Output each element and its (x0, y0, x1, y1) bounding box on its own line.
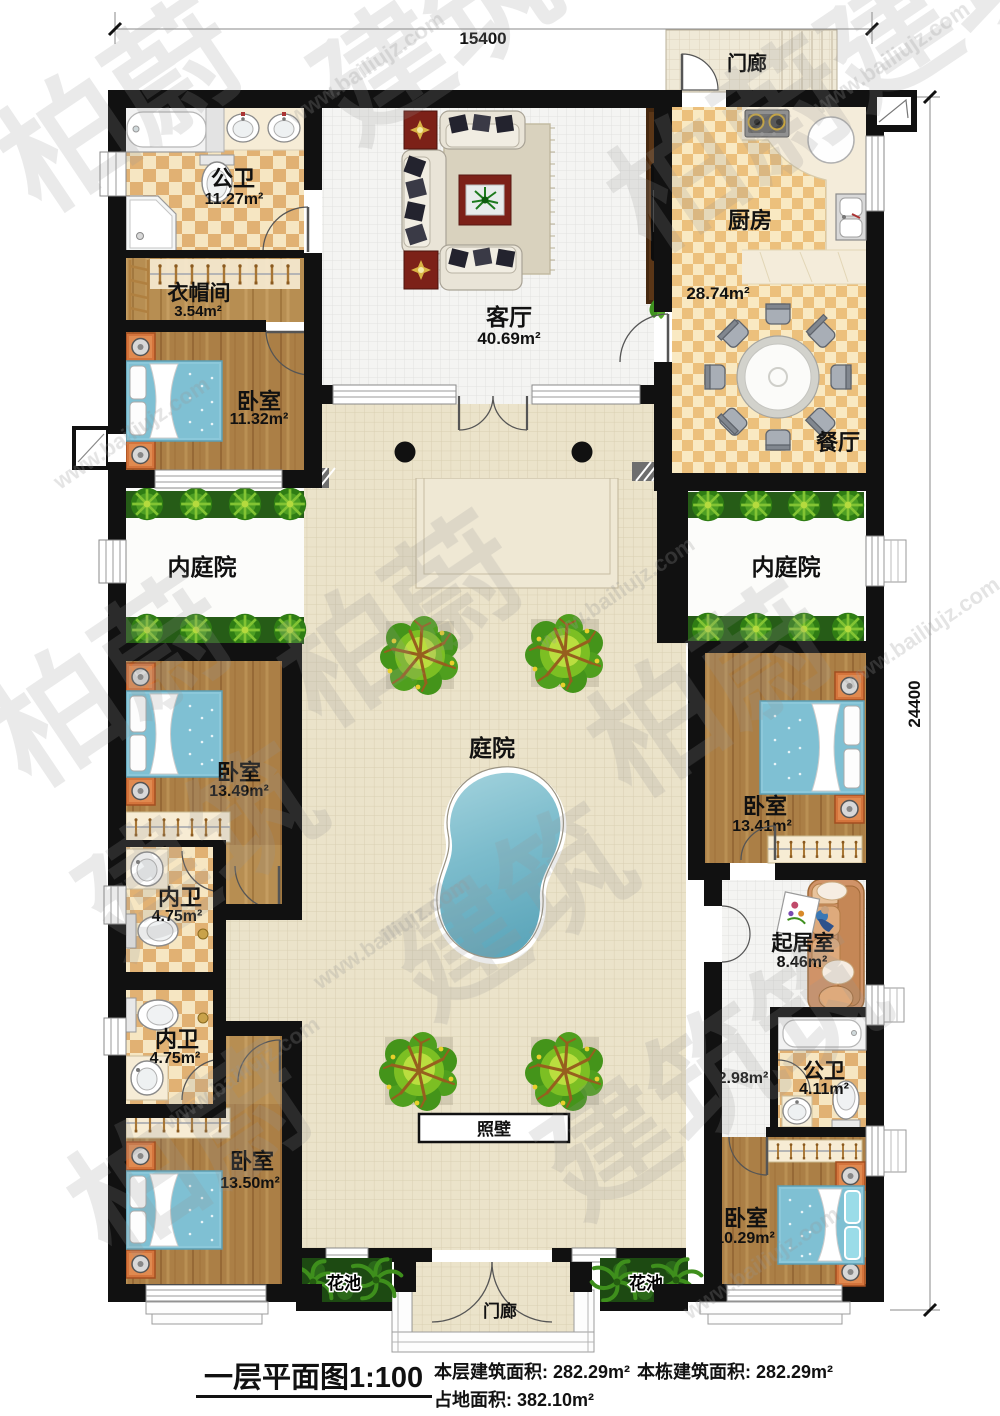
svg-text:卧室: 卧室 (724, 1206, 768, 1231)
svg-text:照壁: 照壁 (477, 1119, 511, 1139)
svg-text:28.74m²: 28.74m² (686, 284, 750, 303)
svg-text:40.69m²: 40.69m² (477, 329, 541, 348)
svg-text:公卫: 公卫 (211, 166, 255, 191)
svg-text:占地面积: 382.10m²: 占地面积: 382.10m² (434, 1389, 594, 1410)
svg-text:庭院: 庭院 (469, 735, 515, 761)
svg-text:11.32m²: 11.32m² (230, 411, 289, 428)
svg-text:13.41m²: 13.41m² (732, 818, 792, 835)
svg-text:卧室: 卧室 (743, 794, 787, 819)
svg-text:本栋建筑面积: 282.29m²: 本栋建筑面积: 282.29m² (637, 1361, 833, 1382)
svg-text:一层平面图1:100: 一层平面图1:100 (204, 1362, 423, 1394)
svg-text:11.27m²: 11.27m² (205, 191, 264, 208)
svg-text:客厅: 客厅 (486, 304, 532, 330)
svg-text:衣帽间: 衣帽间 (168, 281, 231, 305)
svg-text:花池: 花池 (327, 1273, 361, 1293)
svg-text:3.54m²: 3.54m² (174, 303, 222, 320)
svg-text:本层建筑面积: 282.29m²: 本层建筑面积: 282.29m² (434, 1361, 630, 1382)
svg-text:门廊: 门廊 (483, 1301, 517, 1321)
svg-text:餐厅: 餐厅 (816, 430, 860, 455)
svg-text:内卫: 内卫 (155, 1027, 199, 1052)
svg-text:24400: 24400 (905, 680, 924, 727)
